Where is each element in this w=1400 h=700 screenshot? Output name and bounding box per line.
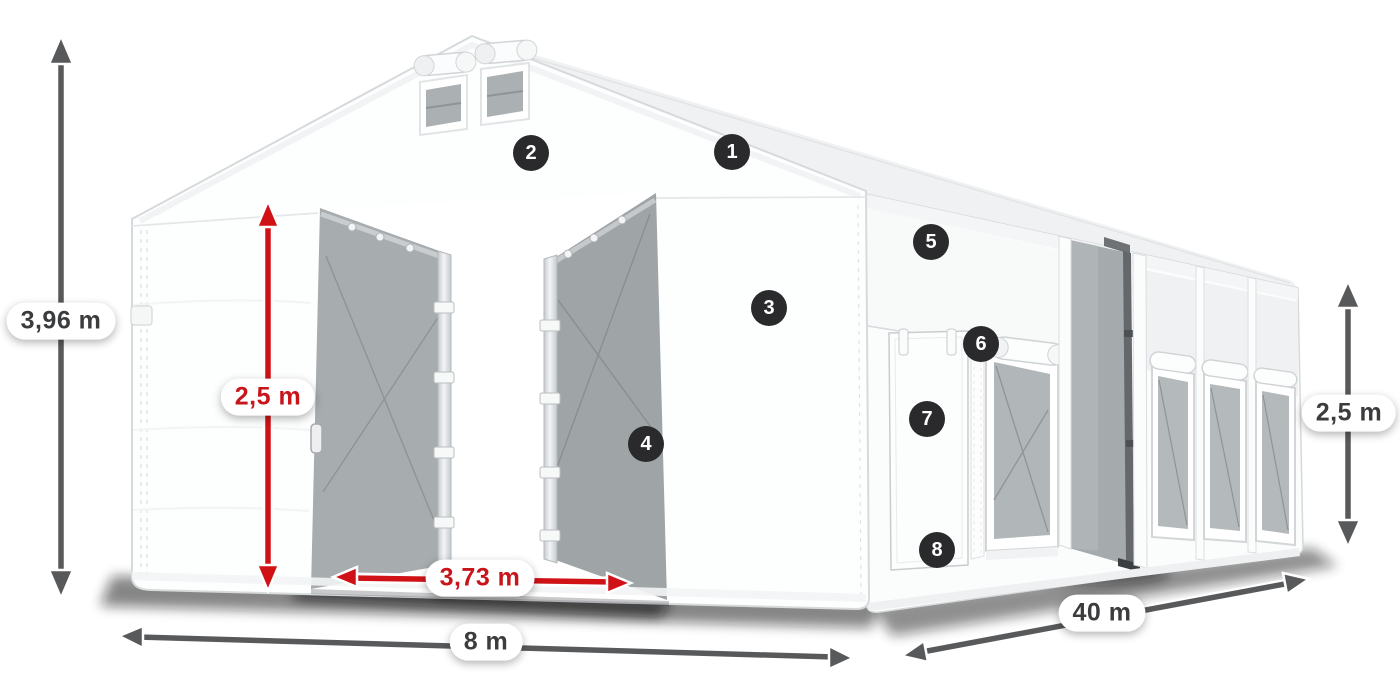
gate-pole-right [544,255,557,563]
side-entrance-opening [1059,236,1147,572]
callout-badge-3[interactable]: 3 [751,290,787,326]
flap-strap [899,329,908,355]
side-window-2 [1149,351,1197,540]
wall-strap [1248,277,1256,553]
callout-badge-8[interactable]: 8 [919,532,955,568]
roof-vent-right [474,39,538,125]
wall-strap [1196,266,1204,560]
roof-vent-left [413,51,477,135]
callout-badge-6[interactable]: 6 [963,326,999,362]
callout-badge-5[interactable]: 5 [913,224,949,260]
side-window-1 [986,335,1069,560]
wall-strap [971,328,984,559]
front-gate-left-leaf [311,208,454,589]
side-window-4 [1253,367,1298,545]
corner-buckle [131,306,152,325]
dimension-label-length: 40 m [1059,595,1146,632]
callout-badge-7[interactable]: 7 [909,401,945,437]
callout-badge-4[interactable]: 4 [628,426,664,462]
dimension-label-width: 8 m [450,624,523,661]
dimension-label-clear-height: 2,5 m [221,379,315,416]
dimension-label-side-height: 2,5 m [1302,395,1396,432]
gate-handle [311,424,322,453]
tent-dimension-diagram: 1 2 3 4 5 6 7 8 3,96 m 2,5 m 3,73 m 8 m … [0,0,1400,700]
side-window-3 [1201,359,1249,542]
dimension-label-gate-width: 3,73 m [426,560,535,597]
tent-svg [0,0,1400,700]
callout-badge-2[interactable]: 2 [513,135,549,171]
front-gate-opening [310,193,669,606]
flap-strap [947,329,956,355]
dimension-label-total-height: 3,96 m [7,303,116,340]
callout-badge-1[interactable]: 1 [714,134,750,170]
